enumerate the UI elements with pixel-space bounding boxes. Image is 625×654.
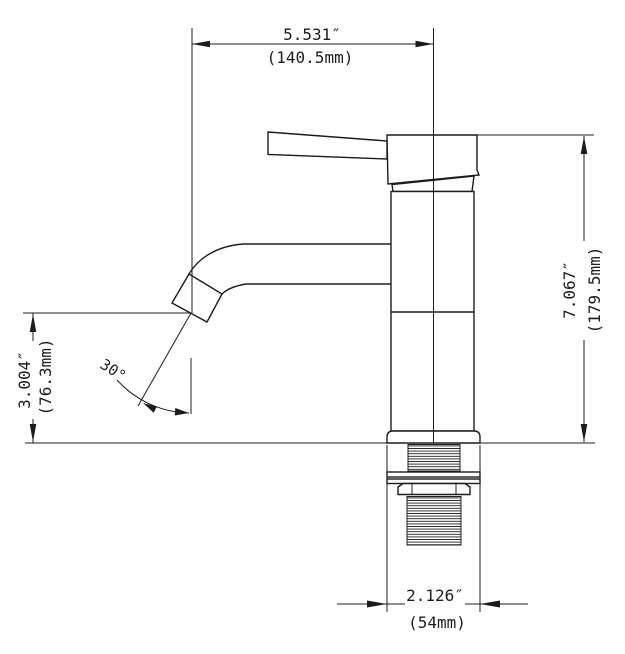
faucet-dimension-drawing: 5.531″ (140.5mm) 7.067″ (179.5mm) 3.004″… bbox=[0, 0, 625, 654]
dim-spout-reach-mm: (140.5mm) bbox=[267, 48, 354, 67]
faucet-body bbox=[391, 192, 474, 432]
dim-overall-height-arrow-top bbox=[581, 136, 588, 154]
handle-lever bbox=[268, 132, 387, 159]
threaded-shank-upper bbox=[408, 445, 460, 472]
dim-spout-angle: 30° bbox=[97, 313, 191, 416]
spout-axis-line bbox=[138, 313, 191, 406]
mounting-washer-top bbox=[387, 472, 480, 477]
reference-lines bbox=[25, 28, 595, 443]
dim-base-width-arrow-left bbox=[367, 601, 387, 608]
angle-arrow-on-vertical bbox=[175, 408, 189, 416]
dim-base-width-mm: (54mm) bbox=[408, 613, 466, 632]
dim-overall-height-arrow-bottom bbox=[581, 424, 588, 442]
dim-spout-height-mm: (76.3mm) bbox=[36, 338, 55, 415]
dim-spout-reach-inches: 5.531″ bbox=[283, 25, 341, 44]
dim-spout-height-inches: 3.004″ bbox=[15, 351, 34, 409]
dim-base-width-arrow-right bbox=[480, 601, 500, 608]
dim-overall-height-mm: (179.5mm) bbox=[585, 247, 604, 334]
dim-spout-height-arrow-bottom bbox=[30, 424, 37, 442]
drawing-svg: 5.531″ (140.5mm) 7.067″ (179.5mm) 3.004″… bbox=[0, 0, 625, 654]
lock-nut bbox=[398, 484, 470, 495]
dim-spout-angle-label: 30° bbox=[97, 355, 130, 385]
dim-overall-height-inches: 7.067″ bbox=[560, 261, 579, 319]
dim-overall-height: 7.067″ (179.5mm) bbox=[477, 135, 604, 442]
dim-spout-height: 3.004″ (76.3mm) bbox=[15, 313, 191, 443]
dim-spout-height-arrow-top bbox=[30, 314, 37, 332]
threaded-shank-lower bbox=[407, 497, 461, 546]
spout-tube bbox=[189, 244, 391, 294]
dim-spout-reach-arrow-left bbox=[192, 41, 210, 48]
dim-base-width-inches: 2.126″ bbox=[406, 586, 464, 605]
dim-spout-reach-arrow-right bbox=[416, 41, 434, 48]
aerator-tip bbox=[172, 274, 222, 322]
